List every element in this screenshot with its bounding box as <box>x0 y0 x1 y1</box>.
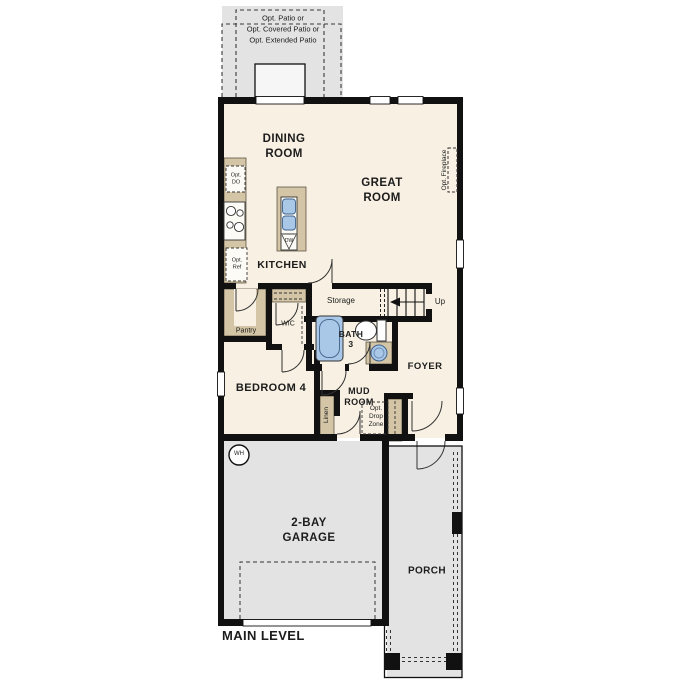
wall-bottom-segment <box>445 434 463 441</box>
sink-basin <box>283 199 296 214</box>
storage-label: Storage <box>327 296 355 306</box>
opt-refrigerator-label: Opt. Ref <box>232 257 242 270</box>
wall <box>384 393 413 399</box>
porch-post <box>384 653 400 670</box>
burner-icon <box>237 210 243 216</box>
fireplace <box>448 148 457 192</box>
water-heater-label: WH <box>234 451 244 459</box>
pantry-floor <box>234 289 256 326</box>
window <box>218 372 225 396</box>
burner-icon <box>226 206 235 215</box>
garage-wall-left <box>218 441 224 626</box>
toilet-tank <box>377 320 386 341</box>
stairs-up-label: Up <box>435 297 445 307</box>
wall-bottom-segment <box>218 434 337 441</box>
garage-wall-right <box>382 441 389 626</box>
patio-options-label: Opt. Patio or Opt. Covered Patio or Opt.… <box>247 14 320 47</box>
wall <box>402 393 408 441</box>
wall <box>306 283 312 371</box>
kitchen-label: KITCHEN <box>257 259 306 273</box>
porch-floor <box>387 446 462 677</box>
bath-3-label: BATH 3 <box>339 329 364 349</box>
wall <box>218 336 272 342</box>
plan-title: MAIN LEVEL <box>222 628 305 645</box>
window <box>457 240 464 268</box>
wall <box>392 316 398 371</box>
patio-door-opening <box>256 97 304 105</box>
cased-opening <box>272 289 306 302</box>
bath-sink-icon <box>371 345 387 361</box>
wall <box>332 283 432 289</box>
window <box>370 97 390 105</box>
wall <box>345 364 349 371</box>
wic-label: WIC <box>281 319 295 328</box>
porch-post <box>452 512 462 534</box>
foyer-label: FOYER <box>408 361 443 373</box>
window <box>398 97 423 105</box>
stair-newel <box>426 309 432 320</box>
window <box>457 388 464 414</box>
wall-bottom-segment <box>360 434 415 441</box>
burner-icon <box>227 222 233 228</box>
burner-icon <box>234 222 243 231</box>
wall <box>224 283 236 289</box>
porch-post <box>446 653 462 670</box>
opt-fireplace-outline <box>448 148 457 192</box>
porch-label: PORCH <box>408 565 446 578</box>
opt-fireplace-label: Opt. Fireplace <box>441 150 449 191</box>
pantry-label: Pantry <box>236 326 256 335</box>
opt-double-oven-label: Opt. DO <box>231 172 241 185</box>
linen-label: Linen <box>323 407 331 423</box>
patio-stoop <box>255 64 305 97</box>
dining-room-label: DINING ROOM <box>263 132 306 162</box>
bedroom-4-label: BEDROOM 4 <box>236 381 306 395</box>
garage-label: 2-BAY GARAGE <box>283 516 336 546</box>
garage-door-opening <box>243 620 371 627</box>
great-room-label: GREAT ROOM <box>361 176 402 206</box>
opt-drop-zone-label: Opt. Drop Zone <box>369 405 384 429</box>
dishwasher-label: DW <box>285 238 293 245</box>
stair-newel <box>426 285 432 294</box>
wall <box>334 390 340 416</box>
wall-top <box>218 97 463 104</box>
floor-plan: Opt. Patio or Opt. Covered Patio or Opt.… <box>0 0 687 687</box>
wall <box>258 283 308 289</box>
sink-basin <box>283 216 296 230</box>
wall <box>266 344 282 350</box>
